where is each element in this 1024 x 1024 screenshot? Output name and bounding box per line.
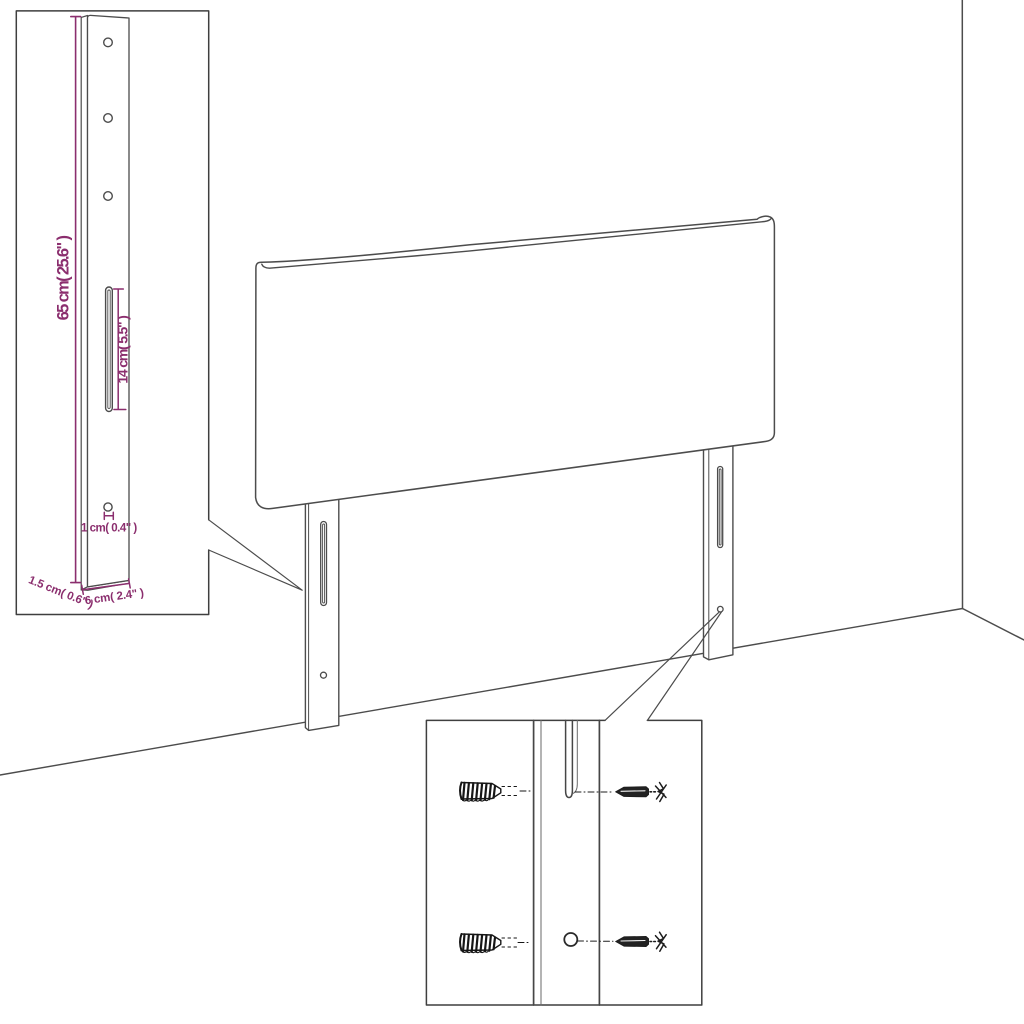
svg-text:14 cm( 5.5" ): 14 cm( 5.5" ) (115, 316, 131, 384)
svg-text:1 cm( 0.4" ): 1 cm( 0.4" ) (81, 522, 137, 534)
svg-text:65 cm( 25.6" ): 65 cm( 25.6" ) (54, 235, 72, 320)
svg-text:6 cm( 2.4" ): 6 cm( 2.4" ) (84, 587, 145, 607)
